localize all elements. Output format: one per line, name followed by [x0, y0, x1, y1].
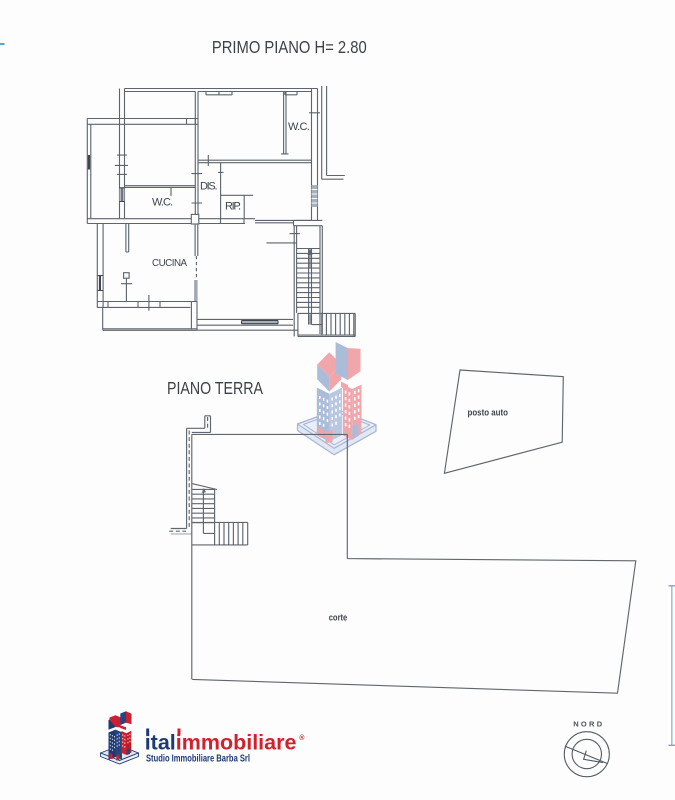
svg-text:Studio Immobiliare Barba Srl: Studio Immobiliare Barba Srl: [146, 754, 250, 765]
svg-text:posto auto: posto auto: [468, 408, 509, 418]
svg-text:corte: corte: [329, 612, 348, 622]
svg-text:NORD: NORD: [573, 720, 604, 729]
svg-text:W.C.: W.C.: [152, 196, 173, 208]
svg-text:RIP.: RIP.: [225, 201, 241, 213]
svg-text:PIANO TERRA: PIANO TERRA: [167, 378, 263, 398]
svg-text:italimmobiliare: italimmobiliare: [145, 731, 297, 755]
svg-text:PRIMO PIANO H= 2.80: PRIMO PIANO H= 2.80: [212, 37, 367, 57]
svg-text:DIS.: DIS.: [200, 180, 218, 192]
svg-text:CUCINA: CUCINA: [152, 258, 188, 269]
svg-text:®: ®: [299, 734, 305, 742]
svg-text:W.C.: W.C.: [288, 121, 310, 133]
